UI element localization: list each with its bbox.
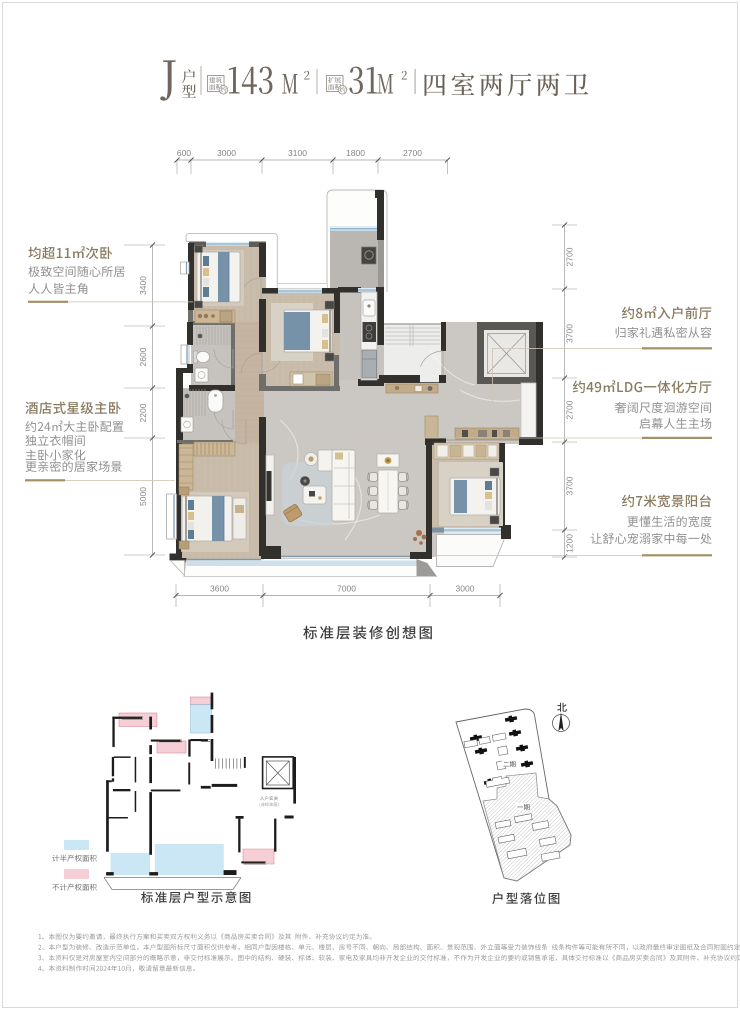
svg-text:5000: 5000	[138, 487, 148, 506]
svg-text:2700: 2700	[565, 247, 575, 266]
svg-text:3400: 3400	[138, 276, 148, 295]
svg-text:2700: 2700	[565, 400, 575, 419]
svg-text:3100: 3100	[288, 148, 307, 158]
svg-text:600: 600	[177, 148, 191, 158]
svg-text:3700: 3700	[565, 324, 575, 343]
svg-text:3000: 3000	[456, 584, 475, 594]
svg-text:7000: 7000	[337, 584, 356, 594]
svg-text:1200: 1200	[565, 534, 575, 553]
svg-text:2600: 2600	[138, 347, 148, 366]
svg-text:3700: 3700	[565, 476, 575, 495]
svg-text:3000: 3000	[217, 148, 236, 158]
svg-text:3600: 3600	[210, 584, 229, 594]
svg-text:2200: 2200	[138, 403, 148, 422]
svg-text:2700: 2700	[403, 148, 422, 158]
svg-text:1800: 1800	[346, 148, 365, 158]
